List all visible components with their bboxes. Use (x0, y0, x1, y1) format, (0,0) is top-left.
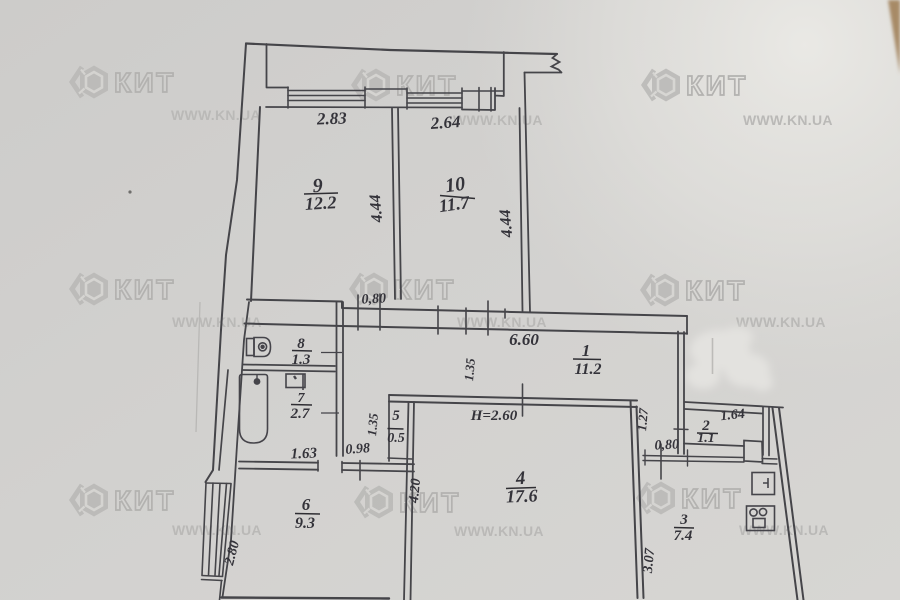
svg-text:5: 5 (392, 408, 400, 424)
svg-text:2.7: 2.7 (290, 406, 310, 422)
svg-text:WWW.KN.UA: WWW.KN.UA (743, 112, 833, 128)
svg-text:КИТ: КИТ (396, 70, 458, 101)
svg-text:4.20: 4.20 (407, 478, 424, 505)
svg-text:WWW.KN.UA: WWW.KN.UA (736, 314, 826, 330)
svg-text:6.60: 6.60 (509, 330, 539, 349)
svg-text:1: 1 (582, 341, 591, 360)
svg-text:КИТ: КИТ (686, 70, 748, 101)
svg-text:4.44: 4.44 (497, 209, 516, 239)
svg-text:1.63: 1.63 (290, 446, 317, 463)
svg-text:12.2: 12.2 (304, 192, 337, 214)
svg-text:1.35: 1.35 (461, 357, 478, 381)
svg-text:КИТ: КИТ (394, 274, 456, 305)
svg-text:17.6: 17.6 (506, 485, 538, 506)
svg-text:4.44: 4.44 (367, 194, 386, 224)
svg-text:1.1: 1.1 (697, 431, 715, 446)
svg-text:0.98: 0.98 (345, 441, 370, 458)
svg-text:WWW.KN.UA: WWW.KN.UA (172, 314, 262, 330)
svg-text:0,80: 0,80 (361, 291, 386, 307)
svg-text:7.4: 7.4 (674, 528, 693, 544)
svg-text:КИТ: КИТ (685, 275, 747, 306)
svg-text:WWW.KN.UA: WWW.KN.UA (457, 314, 547, 330)
svg-text:КИТ: КИТ (114, 67, 176, 98)
svg-text:КИТ: КИТ (114, 274, 176, 305)
svg-text:КИТ: КИТ (681, 483, 743, 514)
svg-text:2.83: 2.83 (316, 108, 348, 128)
svg-text:H=2.60: H=2.60 (470, 408, 518, 424)
svg-text:11.2: 11.2 (574, 361, 601, 378)
svg-text:9.3: 9.3 (295, 515, 315, 532)
svg-text:7: 7 (298, 391, 306, 406)
svg-text:2.64: 2.64 (429, 112, 461, 133)
svg-text:1.35: 1.35 (364, 412, 381, 436)
svg-text:3.07: 3.07 (641, 547, 658, 575)
svg-text:8: 8 (297, 336, 305, 352)
svg-text:1.3: 1.3 (292, 352, 311, 368)
svg-text:WWW.KN.UA: WWW.KN.UA (171, 107, 261, 123)
svg-text:6: 6 (302, 495, 311, 514)
svg-text:1.27: 1.27 (634, 407, 651, 431)
svg-text:3: 3 (679, 512, 688, 528)
svg-text:0.5: 0.5 (387, 431, 405, 446)
svg-text:1.64: 1.64 (720, 407, 746, 424)
svg-text:КИТ: КИТ (114, 485, 176, 516)
svg-text:WWW.KN.UA: WWW.KN.UA (453, 112, 543, 128)
svg-text:WWW.KN.UA: WWW.KN.UA (454, 523, 544, 539)
svg-text:0,80: 0,80 (654, 437, 679, 453)
